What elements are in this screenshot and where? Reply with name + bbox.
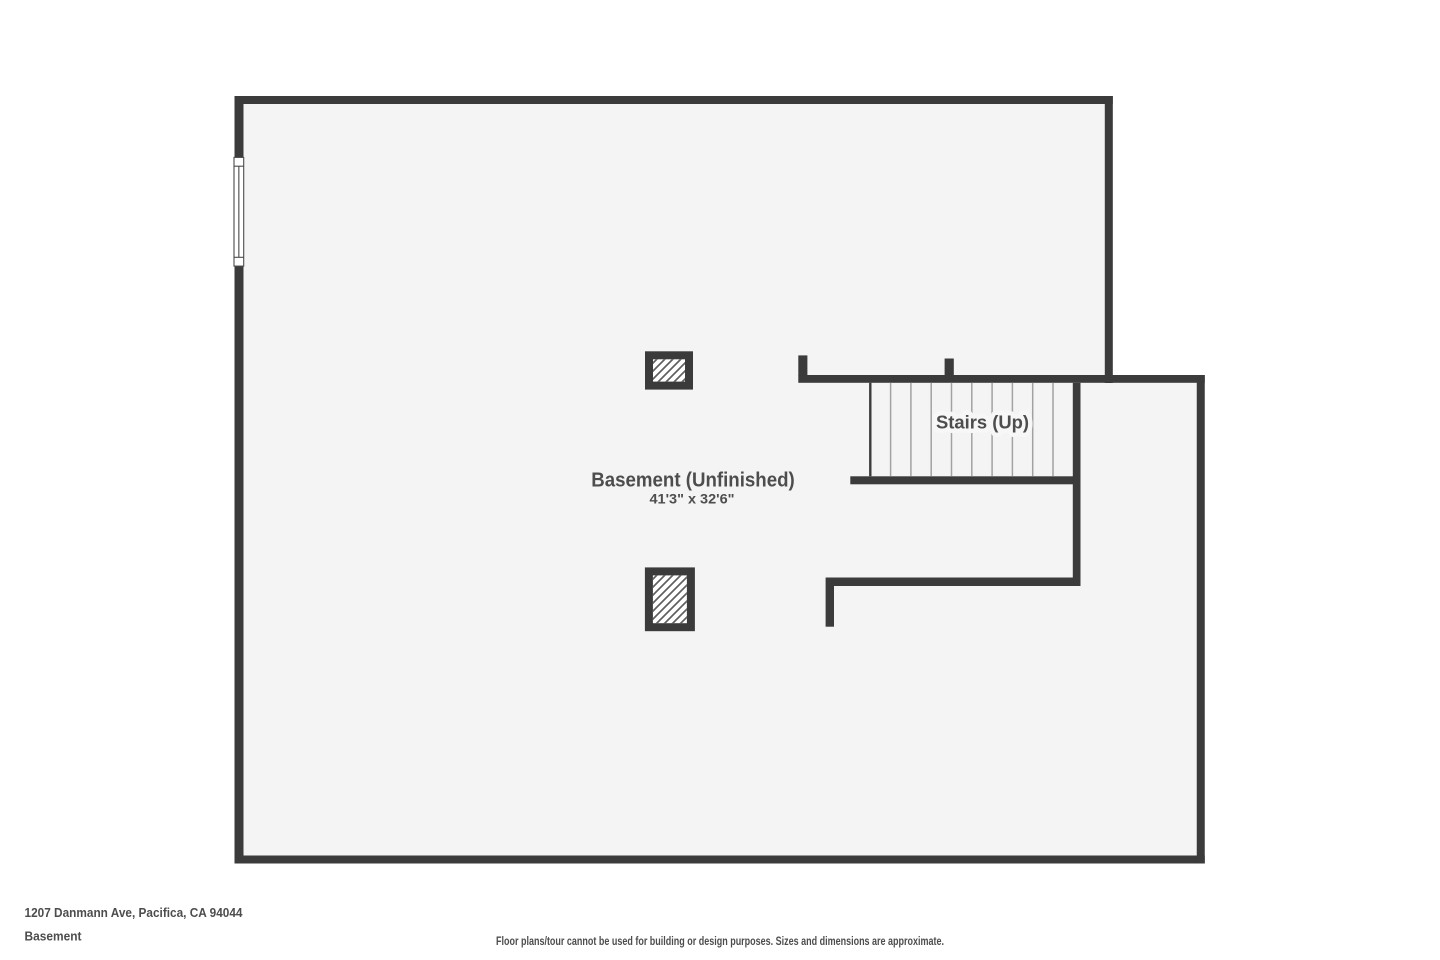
svg-text:Basement: Basement <box>25 929 83 943</box>
svg-text:Basement (Unfinished): Basement (Unfinished) <box>591 469 795 491</box>
svg-text:Floor plans/tour cannot be use: Floor plans/tour cannot be used for buil… <box>496 936 944 948</box>
svg-text:41'3" x 32'6": 41'3" x 32'6" <box>650 491 735 507</box>
svg-text:Stairs (Up): Stairs (Up) <box>936 412 1029 433</box>
svg-text:1207 Danmann Ave, Pacifica, CA: 1207 Danmann Ave, Pacifica, CA 94044 <box>25 906 243 920</box>
